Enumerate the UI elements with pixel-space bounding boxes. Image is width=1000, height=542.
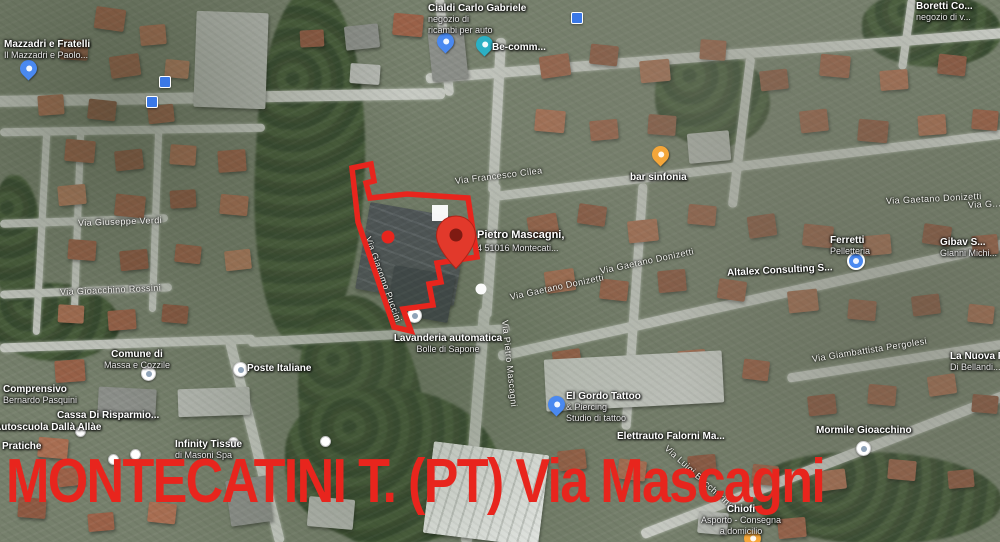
title-overlay: MONTECATINI T. (PT) Via Mascagni (6, 446, 824, 517)
poi-name: Altalex Consulting S... (727, 262, 833, 279)
street-label: Via Giuseppe Verdi (78, 215, 162, 228)
poi-subtext: & Piercing (566, 402, 641, 413)
building (639, 59, 671, 84)
poi-name: Boretti Co... (916, 1, 973, 12)
building (224, 249, 252, 272)
building (747, 213, 778, 239)
poi-subtext: Il Mazzadri e Paolo... (4, 50, 90, 61)
poi-label-la-nuova: La Nuova P...Di Bellandi... (950, 351, 1000, 373)
building (887, 459, 917, 481)
building (687, 204, 717, 226)
poi-name: Cassa Di Risparmio... (57, 410, 159, 421)
building (787, 288, 819, 313)
poi-label-bar-sinfonia: bar sinfonia (630, 172, 687, 183)
poi-label-ferretti: FerrettiPelletteria (830, 235, 870, 257)
building (57, 184, 87, 206)
poi-label-gibav: Gibav S...Gianni Michi... (940, 237, 997, 259)
building (742, 358, 770, 381)
poi-subtext: Massa e Cozzile (104, 360, 170, 371)
building (119, 249, 149, 271)
building (819, 54, 851, 79)
building (937, 54, 967, 77)
building (867, 384, 897, 406)
building (169, 144, 196, 166)
building (911, 293, 941, 316)
poi-label-mazzadri: Mazzadri e FratelliIl Mazzadri e Paolo..… (4, 39, 90, 61)
poi-subtext: negozio di v... (916, 12, 973, 23)
road (0, 124, 265, 137)
poi-label-elettrauto-falorni: Elettrauto Falorni Ma... (617, 431, 725, 442)
poi-name: Lavanderia automatica (394, 333, 502, 344)
building (349, 63, 380, 85)
building (577, 203, 608, 227)
building (67, 239, 96, 261)
transit-marker-icon[interactable] (571, 12, 583, 24)
building (107, 309, 136, 331)
poi-pin-lavanderia-icon[interactable] (407, 308, 422, 323)
poi-subtext: Bernardo Pasquini (3, 395, 77, 406)
building (927, 373, 958, 397)
poi-label-be-comm: Be-comm... (492, 42, 546, 53)
poi-label-boretti: Boretti Co...negozio di v... (916, 1, 973, 23)
building (161, 304, 188, 324)
street-label: Via Pietro Mascagni (500, 319, 519, 407)
building (193, 11, 268, 109)
building (178, 387, 251, 417)
building (114, 149, 144, 172)
building (54, 359, 85, 383)
building (219, 194, 249, 216)
building (879, 69, 908, 91)
building (971, 394, 998, 414)
poi-label-altalex: Altalex Consulting S... (727, 262, 833, 279)
poi-name: Poste Italiane (247, 363, 311, 374)
poi-name: Pietro Mascagni, (477, 229, 564, 242)
road (496, 128, 1000, 200)
poi-pin-bar-sinfonia-icon[interactable] (648, 142, 672, 166)
poi-label-address: Pietro Mascagni,4 51016 Montecati... (477, 229, 564, 254)
poi-subtext: a domicilio (701, 526, 781, 537)
building (94, 6, 127, 32)
poi-label-comprensivo-pasquini: ComprensivoBernardo Pasquini (3, 384, 77, 406)
poi-name: La Nuova P... (950, 351, 1000, 362)
poi-subtext: Pelletteria (830, 246, 870, 257)
building (947, 469, 974, 489)
building (917, 114, 946, 136)
building (799, 109, 829, 134)
poi-name: Gibav S... (940, 237, 997, 248)
building (174, 244, 202, 265)
building (647, 114, 676, 136)
building (777, 517, 807, 539)
building (699, 39, 726, 61)
transit-marker-icon[interactable] (159, 76, 171, 88)
poi-pin-mormile-gioacchino-icon[interactable] (856, 441, 871, 456)
poi-label-lavanderia: Lavanderia automaticaBolle di Sapone (394, 333, 502, 355)
satellite-map[interactable]: MONTECATINI T. (PT) Via Mascagni Via Giu… (0, 0, 1000, 542)
poi-subtext: ricambi per auto (428, 25, 526, 36)
building (759, 69, 789, 92)
building (64, 139, 96, 164)
building (807, 394, 837, 417)
building (687, 130, 731, 164)
building (109, 53, 142, 79)
building (87, 99, 117, 122)
poi-subtext: Gianni Michi... (940, 248, 997, 259)
building (114, 193, 146, 218)
poi-name: Comune di (104, 349, 170, 360)
building (657, 269, 687, 293)
poi-name: Mazzadri e Fratelli (4, 39, 90, 50)
building (534, 109, 566, 134)
poi-name: Cialdi Carlo Gabriele (428, 3, 526, 14)
poi-name: Comprensivo (3, 384, 77, 395)
building (37, 94, 64, 116)
poi-label-mormile-gioacchino: Mormile Gioacchino (816, 425, 912, 436)
poi-label-cassa-di-risparmio: Cassa Di Risparmio... (57, 410, 159, 421)
poi-subtext: 4 51016 Montecati... (477, 242, 564, 255)
building (170, 189, 197, 208)
poi-name: Mormile Gioacchino (816, 425, 912, 436)
transit-marker-icon[interactable] (146, 96, 158, 108)
building (627, 218, 659, 243)
poi-label-el-gordo-tattoo: El Gordo Tattoo& PiercingStudio di tatto… (566, 391, 641, 424)
poi-subtext: Studio di tattoo (566, 413, 641, 424)
building (589, 44, 619, 67)
building (58, 304, 85, 323)
building (589, 119, 619, 141)
poi-name: bar sinfonia (630, 172, 687, 183)
poi-name: Elettrauto Falorni Ma... (617, 431, 725, 442)
building (139, 24, 167, 46)
poi-pin-poste-italiane-icon[interactable] (233, 362, 248, 377)
poi-subtext: Di Bellandi... (950, 362, 1000, 373)
building (217, 149, 246, 173)
building (717, 278, 748, 302)
building (847, 299, 877, 321)
building (300, 29, 325, 47)
poi-name: El Gordo Tattoo (566, 391, 641, 402)
building (971, 109, 999, 131)
street-label: Via G... (968, 198, 1000, 210)
poi-subtext: Bolle di Sapone (394, 344, 502, 355)
building (344, 23, 380, 50)
building (539, 53, 572, 79)
building (967, 304, 995, 325)
poi-subtext: negozio di (428, 14, 526, 25)
poi-label-comune-massa-cozzile: Comune diMassa e Cozzile (104, 349, 170, 371)
poi-name: Ferretti (830, 235, 870, 246)
poi-label-poste-italiane: Poste Italiane (247, 363, 311, 374)
poi-label-cialdi-carlo-gabriele: Cialdi Carlo Gabrielenegozio diricambi p… (428, 3, 526, 36)
poi-name: Autoscuola Dallà Allàe (0, 422, 101, 433)
building (392, 13, 424, 38)
building (857, 119, 889, 144)
poi-name: Be-comm... (492, 42, 546, 53)
poi-label-autoscuola: Autoscuola Dallà Allàe (0, 422, 101, 433)
